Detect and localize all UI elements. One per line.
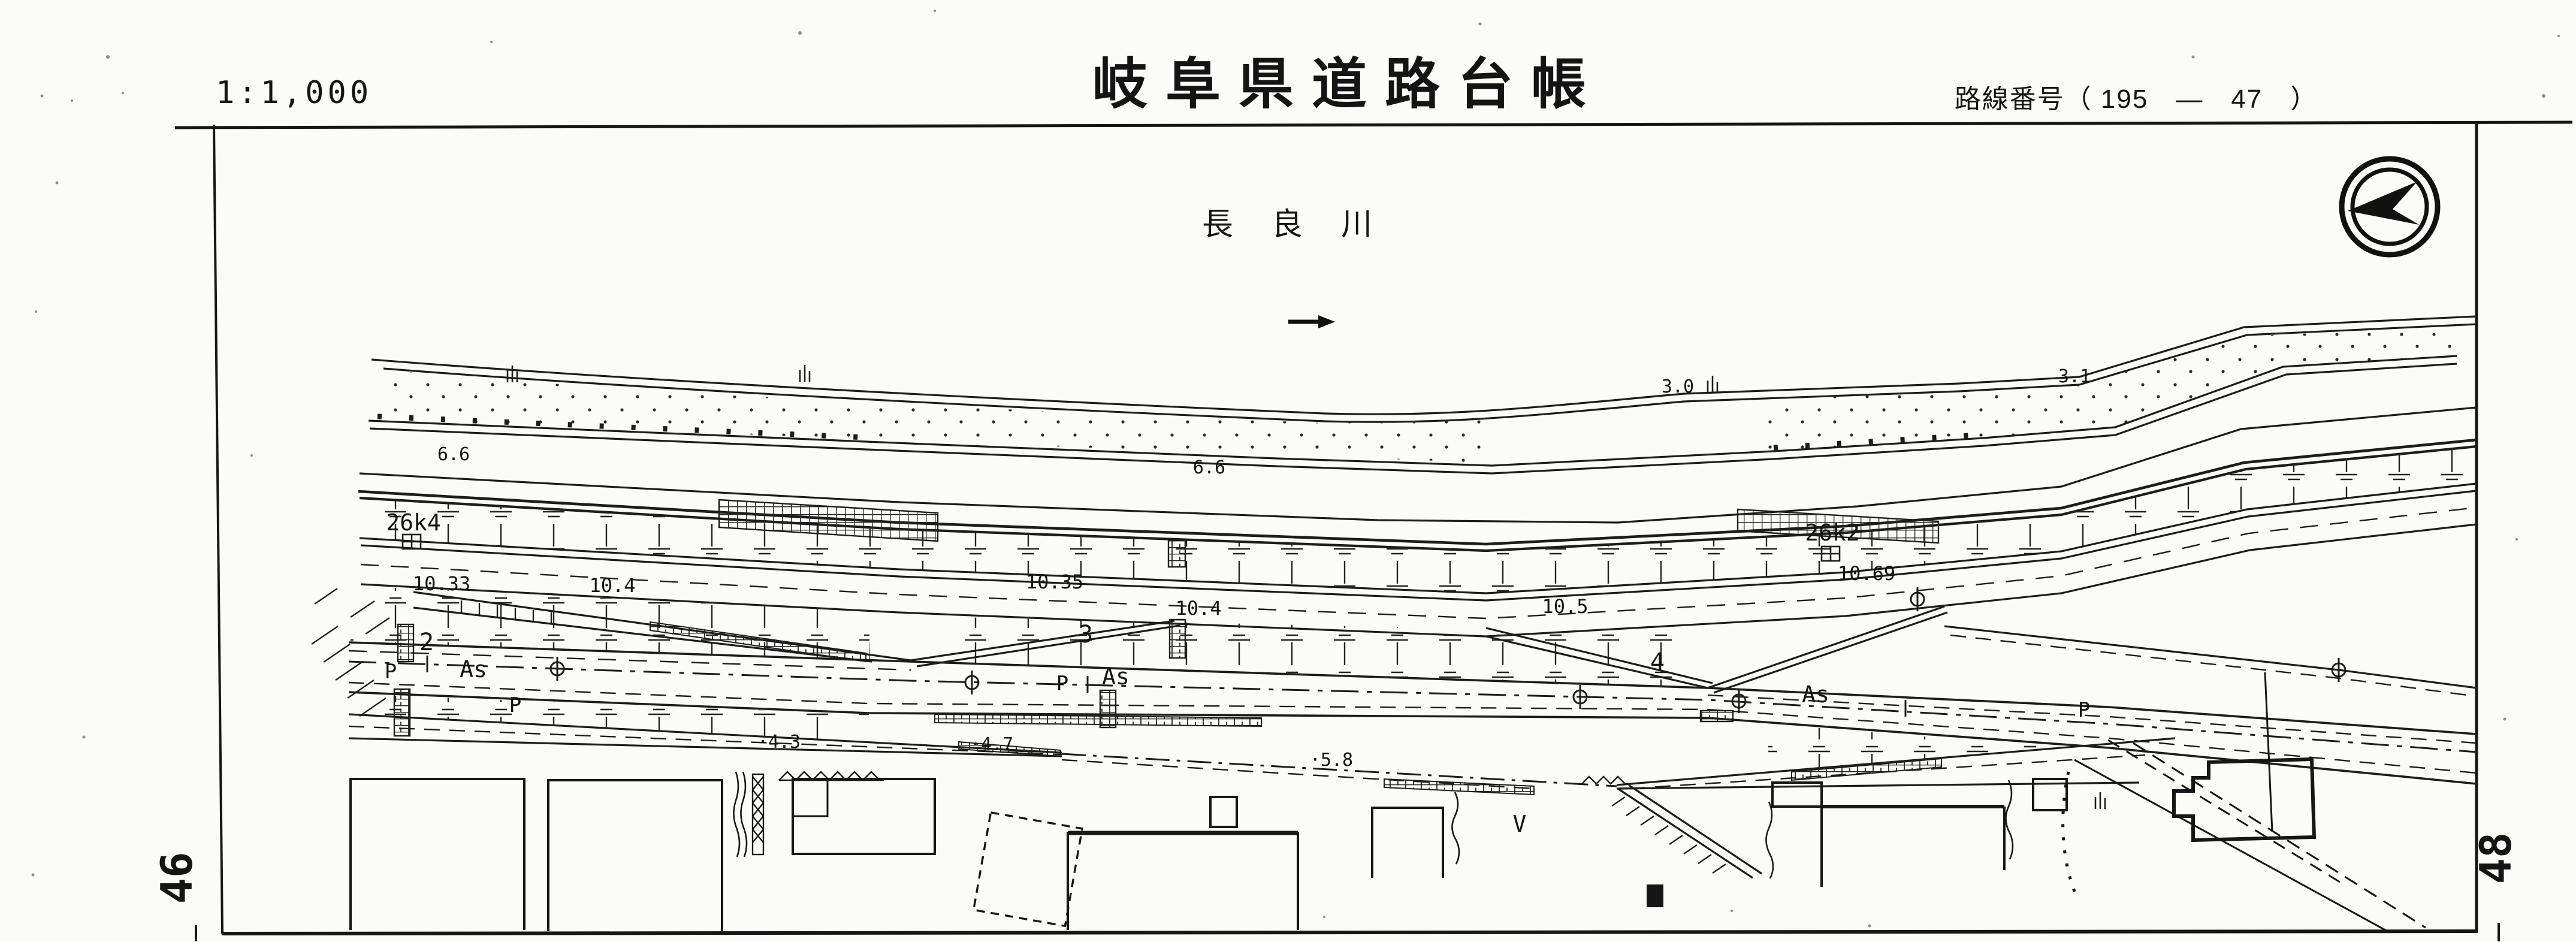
road-width-5: 10.5 <box>1542 595 1588 618</box>
elevation-6.6-a: 6.6 <box>437 444 470 465</box>
parking-p-4: P <box>2078 698 2090 722</box>
scale-label: 1:1,000 <box>216 75 372 111</box>
ladder-strip <box>753 774 763 855</box>
ramp-number-2: 2 <box>419 629 434 656</box>
elevation-3.1: 3.1 <box>2058 366 2091 387</box>
road-ledger-map: 1:1,000 岐阜県道路台帳 路線番号（ 195 — 47 ） 長良川 26k… <box>0 0 2576 942</box>
v-mark: V <box>1513 811 1527 837</box>
page-number-right: 48 <box>2471 832 2521 884</box>
surface-as-3: As <box>1802 681 1829 708</box>
river-flow-arrow-icon <box>1288 315 1335 328</box>
parking-p-1: P <box>385 660 397 684</box>
road-ledger-sheet: 1:1,000 岐阜県道路台帳 路線番号（ 195 — 47 ） 長良川 26k… <box>0 0 2576 942</box>
road-width-4: 10.4 <box>1175 597 1221 620</box>
km-post-26k2: 26k2 <box>1805 520 1860 546</box>
page-title: 岐阜県道路台帳 <box>1092 54 1604 115</box>
road-width-1: 10.33 <box>413 572 470 595</box>
elevation-4.7: ·4.7 <box>970 734 1013 755</box>
parking-p-2: P <box>509 693 521 717</box>
north-compass-icon <box>2342 159 2438 255</box>
elevation-4.3: ·4.3 <box>757 732 801 753</box>
elevation-5.8: ·5.8 <box>1310 750 1353 771</box>
road-width-3: 10.35 <box>1026 570 1083 593</box>
surface-as-2: As <box>1102 663 1130 690</box>
elevation-3.0: 3.0 <box>1662 376 1694 397</box>
levee-outer-slope <box>360 446 2477 600</box>
page-number-left: 46 <box>152 852 202 904</box>
route-number: 路線番号（ 195 — 47 ） <box>1955 84 2318 114</box>
parking-p-3: P <box>1056 672 1068 696</box>
road-width-2: 10.4 <box>589 574 635 597</box>
surface-as-1: As <box>460 656 487 683</box>
km-post-26k4: 26k4 <box>386 509 441 536</box>
elevation-6.6-b: 6.6 <box>1193 457 1225 478</box>
annotations: 1:1,000 岐阜県道路台帳 路線番号（ 195 — 47 ） 長良川 26k… <box>152 54 2521 904</box>
ramp-number-3: 3 <box>1079 621 1093 648</box>
road-width-6: 10.69 <box>1838 562 1895 585</box>
ramp-number-4: 4 <box>1650 648 1665 676</box>
river-name: 長良川 <box>1202 207 1411 242</box>
